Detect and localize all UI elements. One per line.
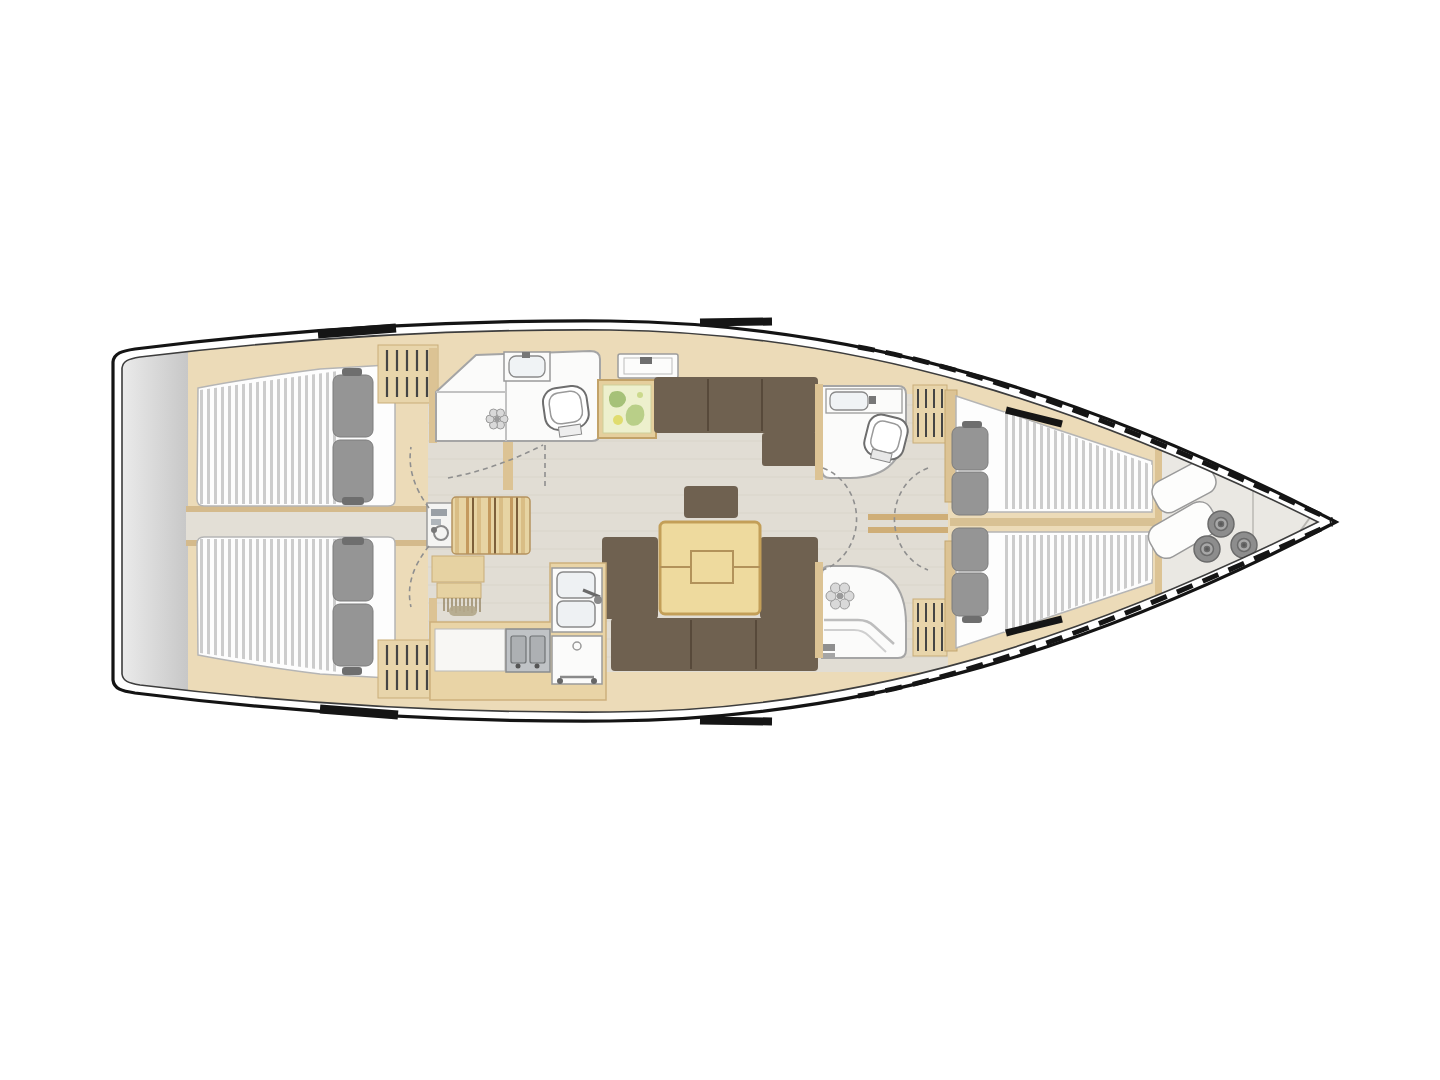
l-sofa-corner bbox=[762, 433, 818, 466]
sink-basin bbox=[557, 601, 595, 627]
oven-knob bbox=[557, 678, 563, 684]
dinette-table bbox=[660, 522, 760, 614]
floorplan-svg bbox=[0, 0, 1440, 1080]
step-pad bbox=[449, 606, 477, 616]
map-island bbox=[637, 392, 643, 398]
map-island bbox=[613, 415, 623, 425]
berth-mattress-stripes bbox=[200, 371, 338, 504]
toe-rail-mark bbox=[700, 721, 772, 722]
saloon-wall-stub bbox=[503, 442, 513, 490]
latch-handle bbox=[962, 616, 982, 623]
u-sofa-bottom bbox=[611, 618, 818, 671]
shower-fitting bbox=[823, 644, 835, 651]
u-sofa-right bbox=[760, 537, 818, 619]
forward-louver-locker bbox=[913, 599, 947, 656]
latch-handle bbox=[962, 421, 982, 428]
nav-seat-striped bbox=[452, 497, 530, 554]
oven bbox=[552, 636, 602, 684]
nav-instrument bbox=[431, 509, 447, 516]
u-sofa-left bbox=[602, 537, 658, 619]
nav-cabinet bbox=[437, 583, 481, 598]
washbasin bbox=[504, 352, 550, 381]
latch-handle bbox=[342, 537, 364, 545]
stove bbox=[506, 629, 550, 672]
l-sofa-back-row bbox=[654, 377, 818, 433]
shower-fitting bbox=[823, 653, 835, 659]
pillow bbox=[333, 440, 373, 502]
pillow bbox=[333, 604, 373, 666]
shower-drain-icon bbox=[486, 409, 508, 429]
worktop bbox=[435, 629, 505, 671]
faucet-icon bbox=[522, 352, 530, 358]
single-back-cushion bbox=[684, 486, 738, 518]
pillow bbox=[333, 375, 373, 437]
latch-handle bbox=[342, 497, 364, 505]
oven-knob bbox=[591, 678, 597, 684]
pillow bbox=[952, 427, 988, 470]
pillow bbox=[952, 573, 988, 616]
stove-knob bbox=[516, 664, 521, 669]
toe-rail-mark bbox=[320, 709, 398, 715]
pillow bbox=[333, 539, 373, 601]
burner bbox=[511, 636, 526, 663]
pillow bbox=[952, 528, 988, 571]
head-wall bbox=[815, 562, 823, 658]
shower-drain-icon bbox=[826, 583, 854, 609]
chart-picture bbox=[598, 380, 656, 438]
aft-corridor-floor bbox=[186, 512, 432, 540]
nav-instrument-dial bbox=[431, 527, 437, 533]
centerline-wall bbox=[868, 527, 948, 533]
berth-mattress-stripes bbox=[200, 539, 338, 672]
latch-handle bbox=[342, 368, 362, 376]
nav-cabinet bbox=[432, 556, 484, 582]
burner bbox=[530, 636, 545, 663]
latch-handle bbox=[342, 667, 362, 675]
toe-rail-mark bbox=[318, 328, 396, 334]
centerline-wall bbox=[868, 514, 948, 520]
double-sink bbox=[552, 568, 602, 632]
nav-instrument bbox=[431, 519, 441, 525]
forward-louver-locker bbox=[913, 385, 947, 443]
stove-knob bbox=[535, 664, 540, 669]
deck-hatch bbox=[618, 354, 678, 378]
interior-content bbox=[110, 330, 1342, 720]
faucet-icon bbox=[869, 396, 876, 404]
pillow bbox=[952, 472, 988, 515]
faucet-base bbox=[594, 596, 602, 604]
yacht-floorplan-canvas bbox=[0, 0, 1440, 1080]
toe-rail-mark bbox=[700, 322, 772, 323]
washbasin bbox=[826, 389, 902, 413]
berth-center-seam bbox=[950, 518, 1160, 526]
aft-corridor-wall-top bbox=[186, 506, 432, 512]
head-wall bbox=[815, 384, 823, 480]
